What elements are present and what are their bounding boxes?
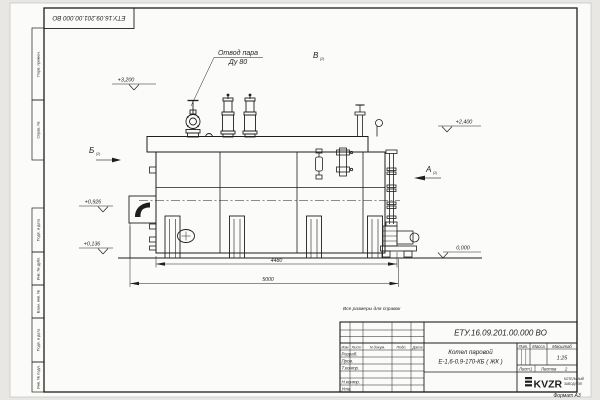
row-tkontr: Т.контр.	[342, 366, 360, 371]
hdr-data: Дата	[411, 345, 422, 349]
sheets-label: Листов	[540, 367, 557, 372]
margin-label-perv-primen: Перв. примен.	[37, 51, 41, 76]
margin-label-inv-podl: Инв. № подл.	[37, 365, 41, 389]
hdr-list: Лист	[351, 345, 362, 349]
view-v-sheet-ref: (2)	[320, 57, 324, 61]
hdr-massa: Масса	[532, 344, 545, 349]
row-utv: Утв.	[342, 387, 352, 392]
margin-label-podp-data-2: Подп. и дата	[37, 328, 41, 351]
title-doc-number: ЕТУ.16.09.201.00.000 ВО	[454, 329, 547, 338]
margin-label-vzam-inv: Взам. инв. №	[37, 290, 41, 314]
margin-label-sprav-no: Справ. №	[37, 121, 41, 138]
scale-value: 1:25	[557, 356, 569, 362]
view-b-letter: Б	[89, 146, 94, 155]
view-v-letter: В	[313, 51, 319, 60]
steam-outlet-label-line1: Отвод пара	[218, 49, 258, 57]
hdr-masshtab: Масштаб	[552, 344, 572, 349]
logo-sub-line1: КОТЕЛЬНЫЙ	[564, 377, 585, 381]
row-nkontr: Н.контр.	[342, 380, 361, 385]
reference-note: Все размеры для справок	[343, 306, 401, 312]
elevation-0926-value: +0,926	[85, 200, 102, 206]
row-razrab: Разраб.	[342, 352, 358, 357]
logo-kvzr-text: KVZR	[534, 379, 563, 391]
sheet-value: 1	[530, 367, 532, 372]
dimension-5000-value: 5000	[262, 277, 274, 283]
format-label: Формат А3	[553, 393, 581, 399]
hdr-lit: Лит.	[518, 344, 529, 349]
row-prov: Пров.	[342, 359, 354, 364]
margin-label-podp-data-1: Подп. и дата	[37, 218, 41, 241]
view-a-letter: А	[425, 165, 431, 174]
elevation-3200-value: +3,200	[118, 78, 135, 84]
dimension-4480-value: 4480	[271, 258, 283, 264]
logo-sub-line2: ЗАВОД РЭП	[564, 382, 583, 386]
steam-outlet-label-line2: Ду 80	[228, 59, 247, 66]
blueprint-canvas: Перв. примен. Справ. № Подп. и дата Инв.…	[0, 0, 600, 400]
drawing-viewer: Перв. примен. Справ. № Подп. и дата Инв.…	[0, 0, 600, 400]
hdr-podp: Подп.	[396, 345, 406, 349]
view-a-sheet-ref: (2)	[433, 171, 437, 175]
hdr-n-docum: N докум.	[370, 345, 385, 349]
margin-label-inv-dubl: Инв. № дубл.	[37, 257, 41, 281]
elevation-2400-value: +2,400	[456, 120, 473, 126]
corner-stamp-doc-number: ЕТУ.16.09.201.00.000 ВО	[52, 14, 125, 21]
product-name-line2: Е-1,6-0,9-170-КБ ( ЖК )	[438, 360, 502, 366]
elevation-0136-value: +0,136	[84, 242, 101, 248]
product-name-line1: Котел паровой	[448, 349, 493, 356]
sheet-label: Лист	[518, 367, 530, 372]
hdr-izm: Изм	[341, 345, 348, 349]
elevation-0000-value: 0,000	[456, 246, 470, 252]
view-b-sheet-ref: (2)	[96, 152, 100, 156]
